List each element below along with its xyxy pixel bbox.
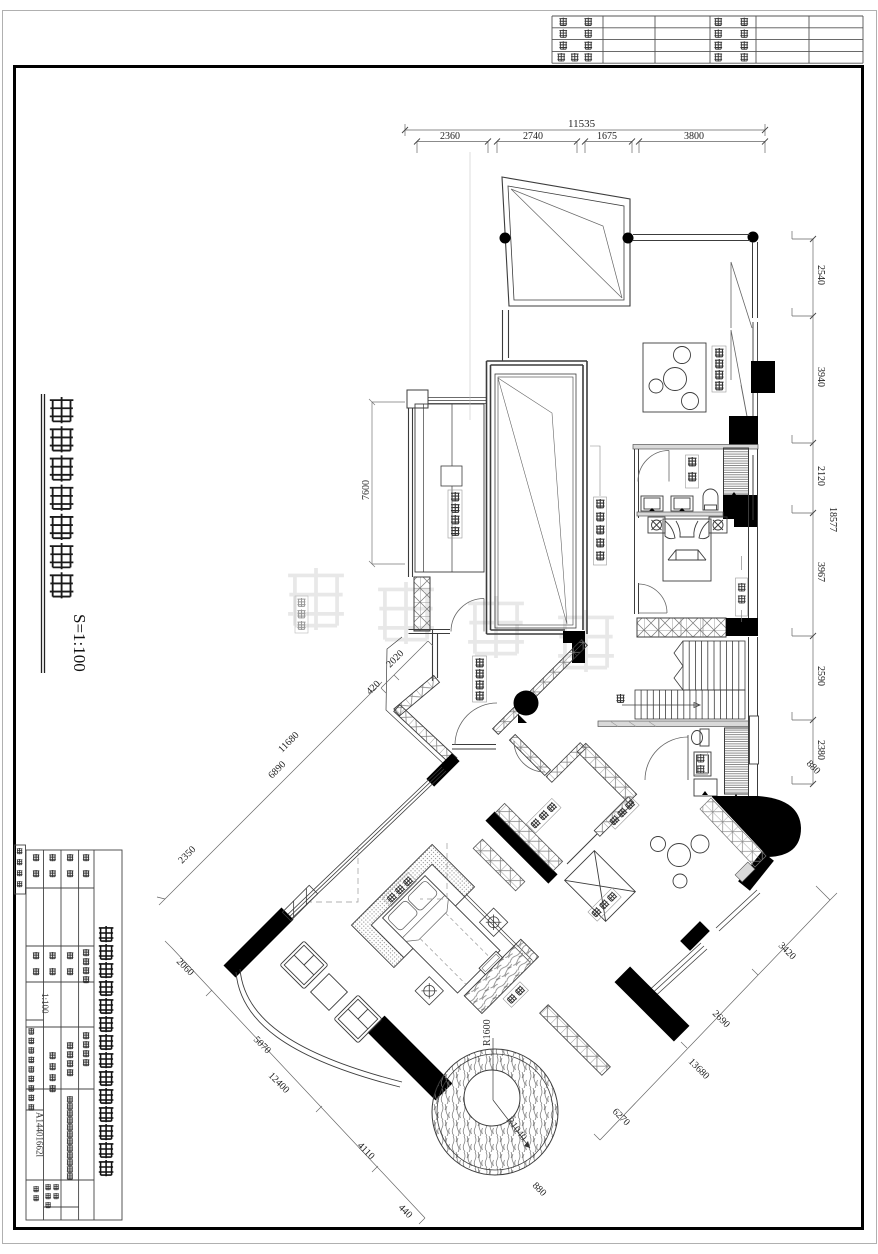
svg-text:2120: 2120 <box>815 466 826 486</box>
svg-text:R1600: R1600 <box>482 1019 493 1046</box>
svg-text:18577: 18577 <box>827 507 838 532</box>
svg-text:S=1:100: S=1:100 <box>70 614 89 672</box>
svg-text:A14401662l: A14401662l <box>35 1112 45 1157</box>
svg-text:7600: 7600 <box>361 480 372 500</box>
svg-text:3967: 3967 <box>815 562 826 582</box>
svg-text:2590: 2590 <box>815 666 826 686</box>
svg-text:2740: 2740 <box>523 131 543 142</box>
svg-text:1675: 1675 <box>597 131 617 142</box>
svg-text:3940: 3940 <box>815 367 826 387</box>
svg-text:2540: 2540 <box>815 265 826 285</box>
svg-text:2380: 2380 <box>815 740 826 760</box>
svg-text:3800: 3800 <box>684 131 704 142</box>
svg-text:2360: 2360 <box>440 131 460 142</box>
svg-text:11535: 11535 <box>568 118 596 130</box>
svg-text:1:100: 1:100 <box>40 993 50 1014</box>
